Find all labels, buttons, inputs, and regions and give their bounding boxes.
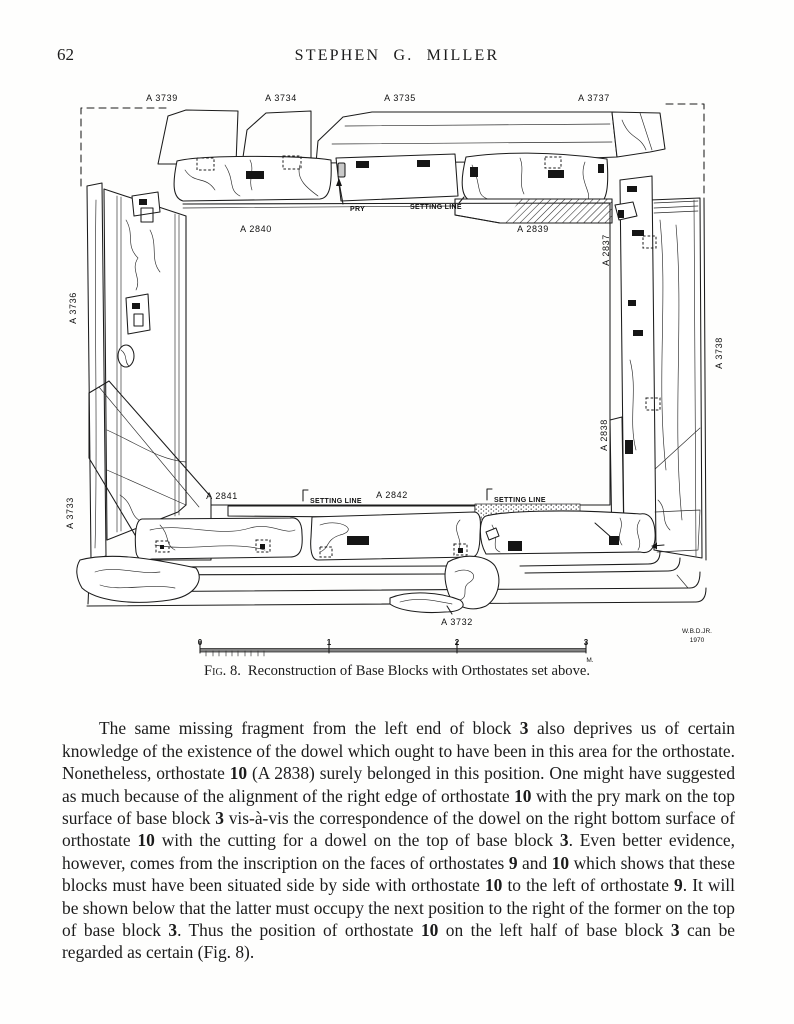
right-wall-blocks: [610, 176, 706, 560]
setting-line-label-bottom-right: SETTING LINE: [494, 497, 546, 504]
draftsman-credit: W.B.D.JR.: [682, 628, 712, 635]
figure-caption-label: Fig. 8.: [204, 663, 241, 679]
label-a2837: A 2837: [601, 234, 611, 266]
label-a2840: A 2840: [240, 224, 272, 234]
label-a2841: A 2841: [206, 491, 238, 501]
label-a3733: A 3733: [65, 497, 75, 529]
scale-tick-2: 2: [455, 638, 460, 647]
setting-line-label-top: SETTING LINE: [410, 204, 462, 211]
figure-caption: Fig. 8.Reconstruction of Base Blocks wit…: [0, 663, 794, 680]
credit-year: 1970: [690, 637, 705, 644]
scale-tick-1: 1: [327, 638, 332, 647]
figure-caption-text: Reconstruction of Base Blocks with Ortho…: [248, 663, 590, 679]
interior-opening: [183, 203, 610, 505]
pry-label: PRY: [350, 206, 365, 213]
label-a2842: A 2842: [376, 490, 408, 500]
label-a3739: A 3739: [146, 93, 178, 103]
label-a2838: A 2838: [599, 419, 609, 451]
scale-tick-3: 3: [584, 638, 589, 647]
scale-bar: 0 1 2 3 M.: [198, 638, 594, 664]
label-a3732: A 3732: [441, 617, 473, 627]
label-a3734: A 3734: [265, 93, 297, 103]
orthostate-course-top: [174, 153, 612, 223]
scanned-paper-page: 62 STEPHEN G. MILLER: [0, 0, 794, 1024]
label-a3735: A 3735: [384, 93, 416, 103]
label-a3738: A 3738: [714, 337, 724, 369]
label-a3736: A 3736: [68, 292, 78, 324]
label-a3737: A 3737: [578, 93, 610, 103]
left-wall-blocks: [87, 183, 211, 560]
frame-steps: [77, 552, 706, 614]
body-paragraph: The same missing fragment from the left …: [62, 717, 735, 963]
label-a2839: A 2839: [517, 224, 549, 234]
scale-tick-0: 0: [198, 638, 203, 647]
setting-line-label-bottom-left: SETTING LINE: [310, 498, 362, 505]
